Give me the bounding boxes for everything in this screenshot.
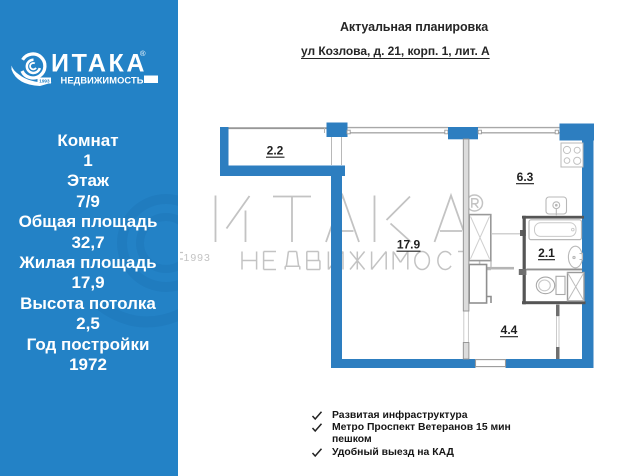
svg-text:2.2: 2.2 <box>267 144 284 158</box>
svg-text:6.3: 6.3 <box>517 170 534 184</box>
svg-text:2.1: 2.1 <box>538 246 555 260</box>
svg-text:1993: 1993 <box>39 78 50 83</box>
svg-text:®: ® <box>140 49 146 58</box>
svg-text:17.9: 17.9 <box>397 238 421 252</box>
svg-text:ИТАКА: ИТАКА <box>51 49 147 77</box>
svg-text:1993: 1993 <box>184 252 211 264</box>
svg-text:НЕДВИЖИМОСТЬ: НЕДВИЖИМОСТЬ <box>61 75 144 85</box>
svg-text:4.4: 4.4 <box>501 323 518 337</box>
